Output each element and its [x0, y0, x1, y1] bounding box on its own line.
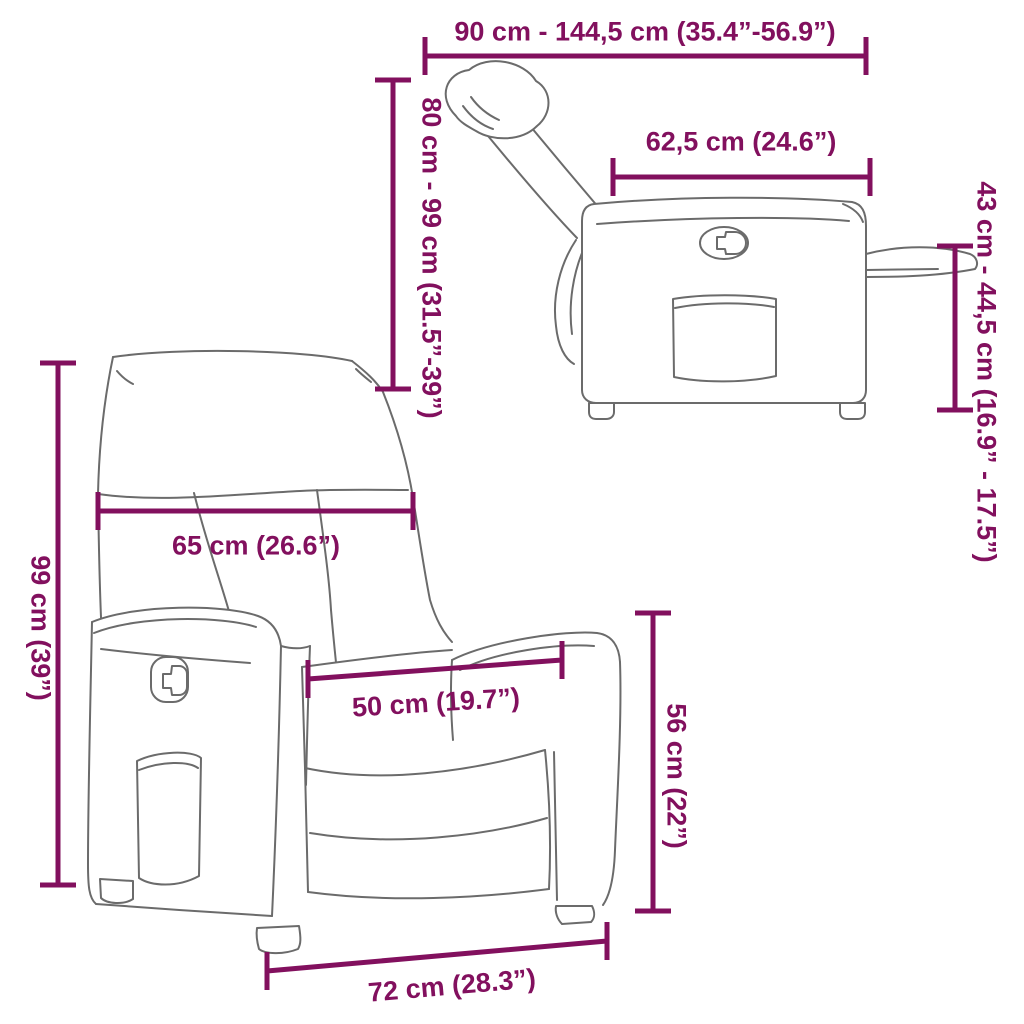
dim-label-total-height: 99 cm (39”)	[25, 555, 56, 701]
dimension-diagram: 90 cm - 144,5 cm (35.4”-56.9”) 80 cm - 9…	[0, 0, 1024, 1024]
dim-label-backrest-width: 65 cm (26.6”)	[172, 531, 340, 562]
dim-seat-depth-line	[613, 158, 870, 196]
dim-label-total-length: 90 cm - 144,5 cm (35.4”-56.9”)	[454, 17, 835, 48]
dim-label-reclined-height: 80 cm - 99 cm (31.5”-39”)	[416, 97, 447, 418]
front-view-drawing	[88, 351, 620, 953]
dim-label-footrest-height: 43 cm - 44,5 cm (16.9” - 17.5”)	[971, 181, 1002, 562]
dim-label-seat-depth: 62,5 cm (24.6”)	[646, 127, 837, 158]
dim-label-seat-height: 56 cm (22”)	[661, 703, 692, 849]
side-view-drawing	[446, 61, 977, 419]
dim-reclined-height-line	[375, 80, 411, 389]
recliner-line-art	[0, 0, 1024, 1024]
